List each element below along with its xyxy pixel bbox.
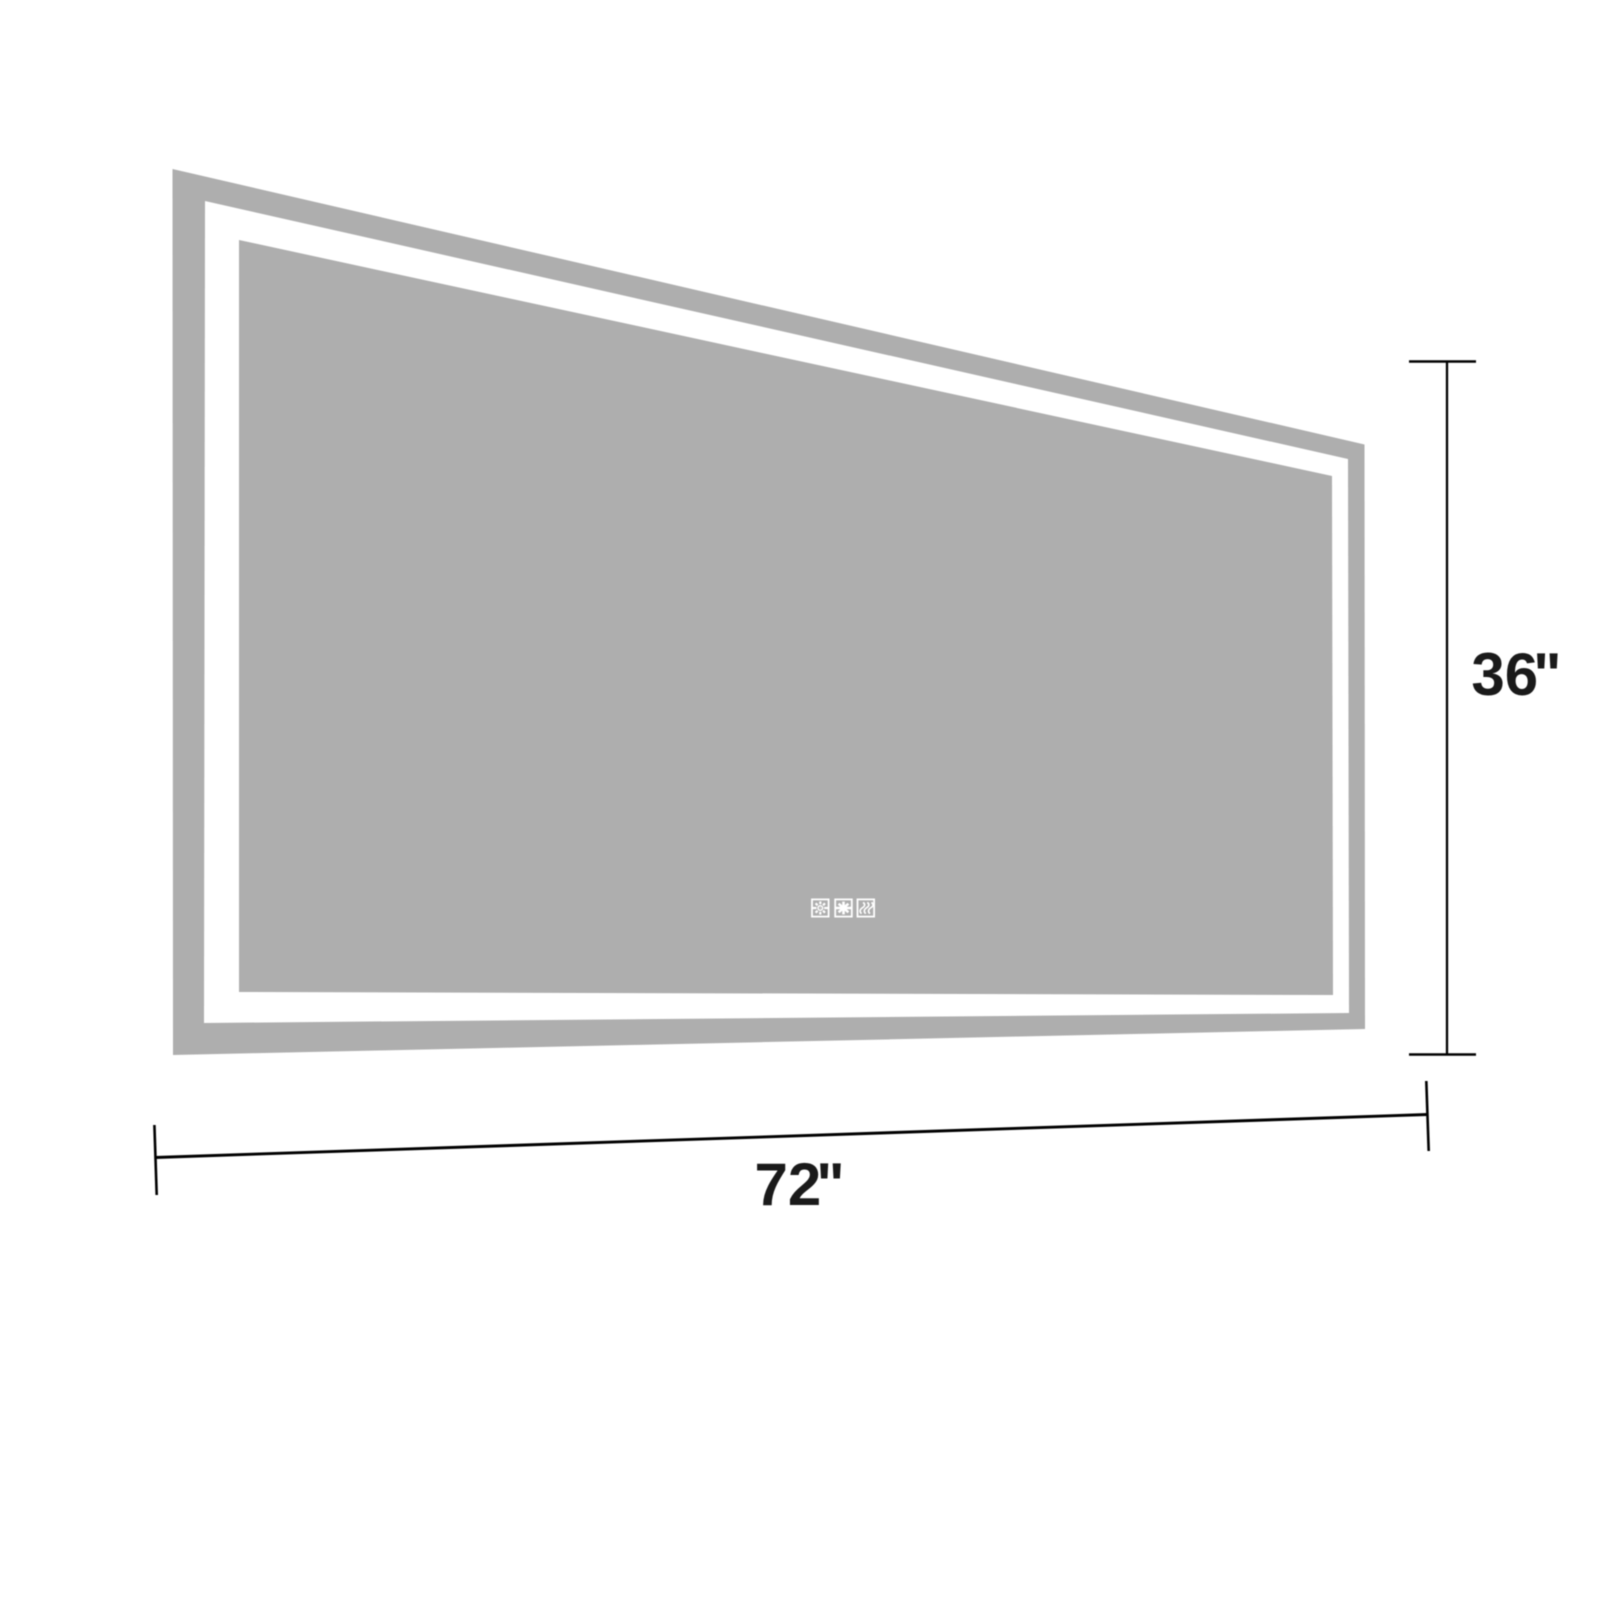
svg-text:72": 72" xyxy=(755,1151,845,1218)
svg-text:36": 36" xyxy=(1471,641,1561,708)
